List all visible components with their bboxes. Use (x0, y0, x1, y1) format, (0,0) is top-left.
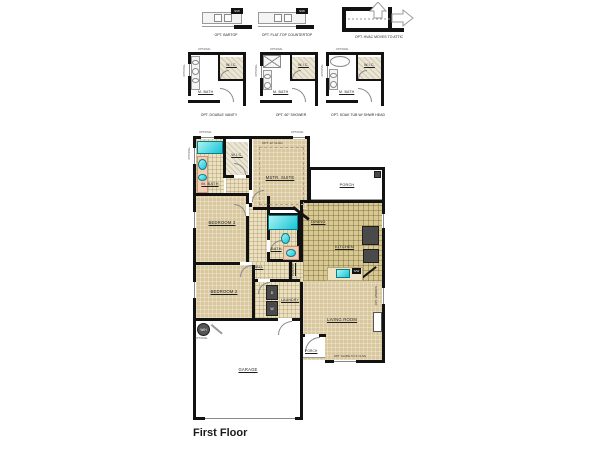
window (193, 212, 196, 228)
bartop-bar-wall (234, 25, 252, 29)
opt-shower-diagram: OPTIONAL W.I.C. M. BATH OPTIONAL OPT. 60… (260, 48, 324, 122)
opt-soak-tub-label: OPT. SOAK TUB W/ SHWR HEAD (318, 114, 398, 118)
optional-tag: OPTIONAL (270, 48, 283, 51)
window (193, 282, 196, 298)
master-bath-sink (198, 174, 207, 181)
bartop-sink-left (214, 14, 222, 22)
opt-hvac-diagram: OPT. HVAC MOVES TO ATTIC (342, 2, 416, 44)
window (293, 136, 305, 139)
mbath-label: M. BATH (273, 91, 288, 95)
floor-plan-sheet: S/W OPT. BARTOP S/W OPT. FLAT-TOP COUNTE… (0, 0, 600, 450)
room-label-bath: BATH (271, 247, 282, 251)
bath-sink (286, 249, 296, 257)
toilet (264, 82, 271, 89)
soak-tub (330, 56, 350, 67)
bartop-sink-right (224, 14, 232, 22)
room-label-pantry: PANTRY (292, 263, 295, 276)
optional-tag: OPTIONAL (255, 64, 258, 77)
mbath-label: M. BATH (198, 91, 213, 95)
opt-flattop-diagram: S/W OPT. FLAT-TOP COUNTERTOP (256, 8, 320, 40)
opt-double-vanity-diagram: OPTIONAL W.I.C. M. BATH OPTIONAL OPT. DO… (188, 48, 252, 122)
room-label-living: LIVING ROOM (320, 318, 364, 323)
wall (193, 136, 196, 420)
shower-60in (263, 55, 281, 68)
sink (330, 73, 337, 78)
porch-equipment-box (374, 171, 381, 178)
room-label-dining: DINING (311, 220, 326, 224)
wall (252, 265, 255, 318)
flattop-baseline (258, 26, 296, 27)
room-label-wic: W.I.C. (226, 153, 248, 157)
range (363, 249, 379, 263)
living-side-note: OPT. WINDOW (374, 286, 378, 305)
window (382, 288, 385, 304)
refrigerator (362, 226, 379, 245)
hvac-drawing (342, 2, 414, 34)
bath-tub (268, 215, 298, 230)
opt-hvac-label: OPT. HVAC MOVES TO ATTIC (342, 36, 416, 40)
room-label-laundry: LAUNDRY (281, 299, 299, 303)
sink (192, 60, 199, 65)
flattop-bar-wall (296, 25, 314, 29)
porch-edge (303, 357, 325, 358)
door-arc (220, 88, 234, 102)
optional-tag: OPTIONAL (198, 48, 211, 51)
sink (264, 74, 271, 79)
optional-tag: OPTIONAL (336, 48, 349, 51)
water-heater: W/H (197, 323, 210, 336)
room-label-rear-porch: PORCH (333, 183, 361, 187)
wall (308, 167, 311, 203)
optional-tag: OPTIONAL (195, 337, 208, 340)
room-label-bedroom2: BEDROOM 2 (202, 290, 246, 295)
wic-label: W.I.C. (221, 64, 242, 68)
kitchen-sink-chip: S/W (352, 268, 361, 274)
room-label-bedroom3: BEDROOM 3 (200, 221, 244, 226)
flattop-sink-left (274, 14, 282, 22)
page-title: First Floor (193, 427, 247, 439)
wic-label: W.I.C. (293, 64, 314, 68)
optional-tag: OPTIONAL (199, 131, 212, 134)
window (382, 214, 385, 228)
bath-toilet (281, 233, 290, 244)
toilet (192, 68, 199, 75)
room-label-hall: HALL (253, 265, 263, 269)
sink (192, 78, 199, 83)
optional-tag: OPTIONAL (291, 131, 304, 134)
kitchen-sink (336, 269, 350, 278)
washer: W (266, 301, 278, 316)
media-niche (373, 312, 382, 332)
wall (300, 200, 385, 203)
master-ceiling-note: OPT. 12' CLNG (262, 141, 283, 145)
room-label-garage: GARAGE (232, 368, 264, 373)
garage-door-opening (205, 417, 295, 420)
opt-bartop-label: OPT. BARTOP (198, 34, 254, 38)
room-label-master-suite: MSTR. SUITE (258, 176, 302, 181)
master-bath-tub (197, 141, 223, 154)
door-arc (358, 88, 372, 102)
window (193, 148, 196, 164)
opt-soak-tub-diagram: OPTIONAL W.I.C. M. BATH OPTIONAL OPT. SO… (326, 48, 390, 122)
opt-bartop-diagram: S/W OPT. BARTOP (198, 8, 256, 40)
optional-tag: OPTIONAL (188, 147, 191, 160)
opt-shower-label: OPT. 60" SHOWER (255, 114, 327, 118)
dryer: D (266, 285, 278, 300)
porch-edge (311, 199, 382, 200)
bartop-baseline (202, 26, 234, 27)
room-label-front-porch: PORCH (305, 350, 318, 354)
opt-double-vanity-label: OPT. DOUBLE VANITY (183, 114, 255, 118)
wall (223, 139, 226, 178)
room-label-kitchen: KITCHEN (335, 245, 354, 249)
bartop-sink-chip: S/W (231, 8, 243, 14)
door-arc (292, 88, 306, 102)
toilet (330, 81, 337, 88)
window (201, 136, 214, 139)
wall (382, 167, 385, 363)
wall (308, 167, 385, 170)
opt-flattop-label: OPT. FLAT-TOP COUNTERTOP (252, 34, 322, 38)
flattop-sink-chip: S/W (296, 8, 308, 14)
flattop-sink-right (284, 14, 292, 22)
window (334, 360, 356, 363)
wic-label: W.I.C. (359, 64, 380, 68)
wall (196, 193, 249, 196)
wall (300, 203, 303, 262)
optional-tag: OPTIONAL (321, 64, 324, 77)
wall (300, 282, 303, 334)
room-label-master-bath: M. BATH (196, 182, 224, 186)
optional-tag: OPTIONAL (183, 64, 186, 77)
wall (253, 207, 295, 210)
mbath-label: M. BATH (339, 91, 354, 95)
living-front-note: OPT. SLOPE TO 9' CLNG (325, 354, 375, 358)
master-bath-toilet (198, 159, 207, 170)
